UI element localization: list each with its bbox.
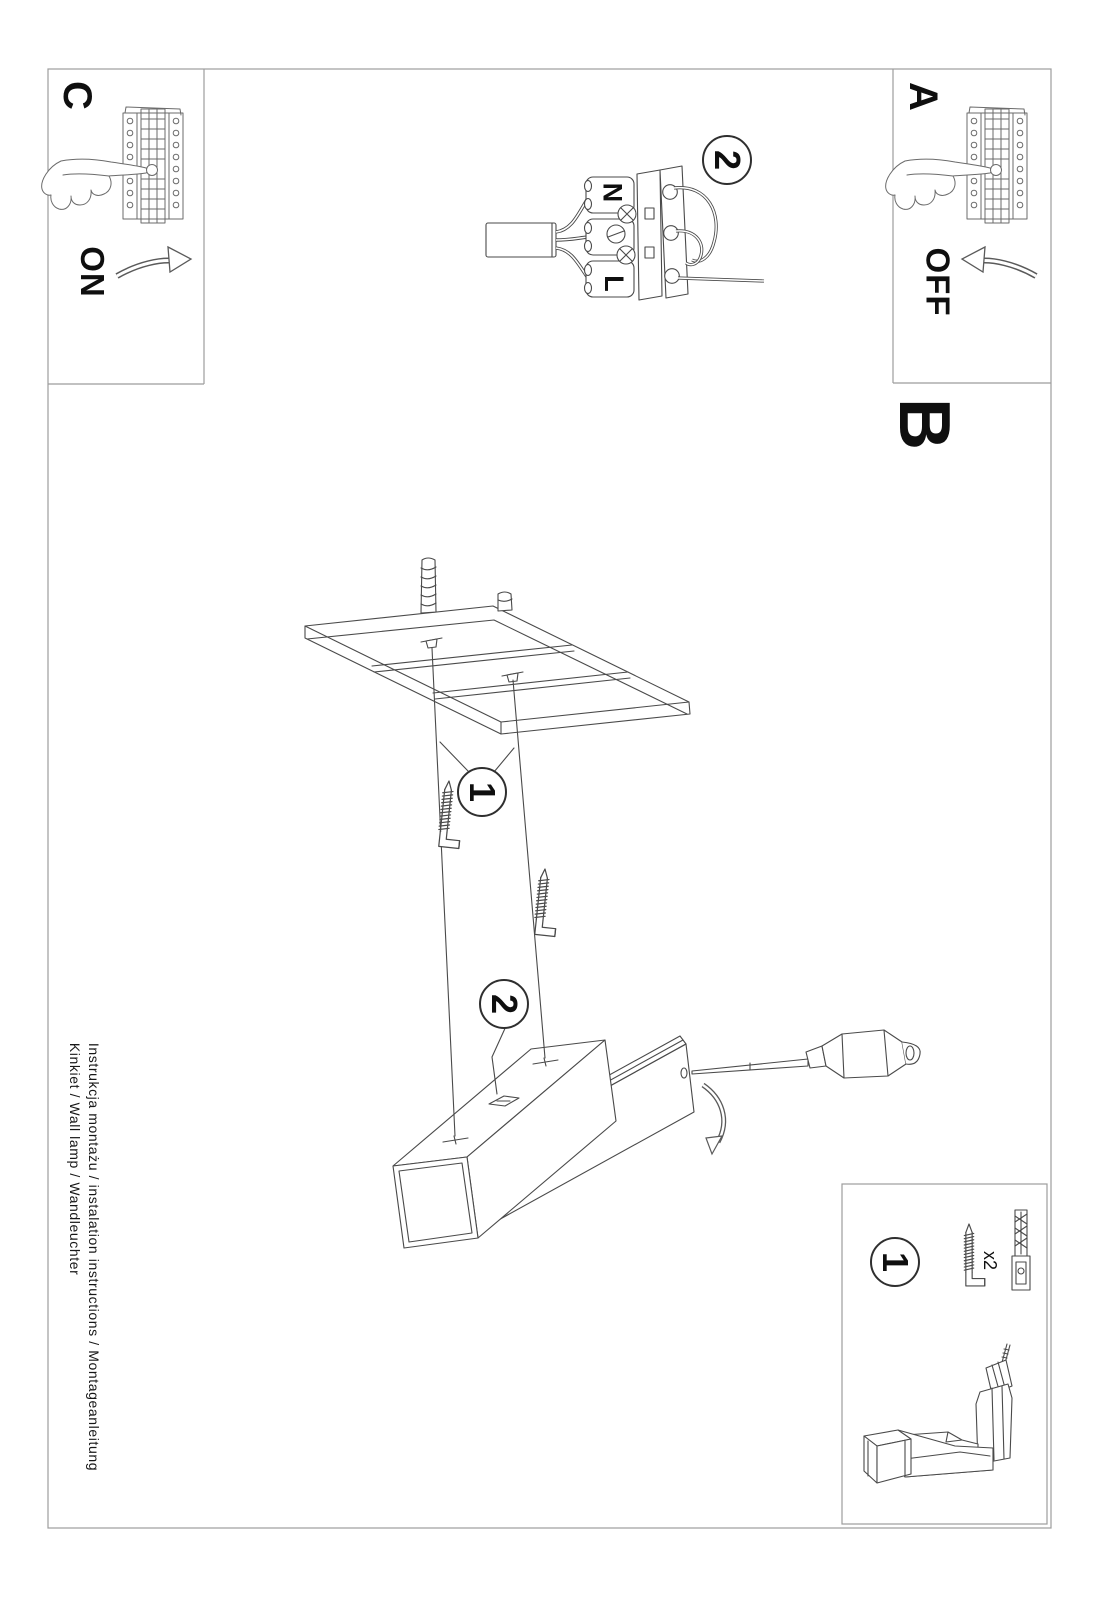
lamp-body-diagram	[393, 1036, 694, 1248]
screwdriver-icon	[692, 1030, 920, 1078]
cable-plug-icon	[498, 592, 512, 611]
breaker-panel-off-icon	[886, 107, 1027, 223]
rotate-on-arrow-icon	[117, 247, 191, 276]
screw-rotation-arrow-icon	[703, 1085, 724, 1154]
line-art-layer	[0, 0, 1098, 1600]
hook-screw-icon	[964, 1224, 984, 1286]
hook-screw-icon	[437, 780, 466, 848]
wall-anchor-icon	[1012, 1210, 1030, 1290]
terminal-block-diagram	[486, 166, 764, 300]
threaded-stud-icon	[421, 558, 436, 613]
drill-icon	[864, 1344, 1012, 1483]
breaker-panel-on-icon	[42, 107, 183, 223]
page-borders	[48, 69, 1051, 1528]
hook-screw-icon	[533, 868, 562, 936]
lamp-screw-icon	[681, 1068, 687, 1078]
rotate-off-arrow-icon	[962, 247, 1036, 276]
instruction-sheet: C ON A OFF B N L 2 1 2 1 x2 Instrukcja m…	[0, 0, 1098, 1600]
wall-plate-diagram	[305, 558, 690, 734]
